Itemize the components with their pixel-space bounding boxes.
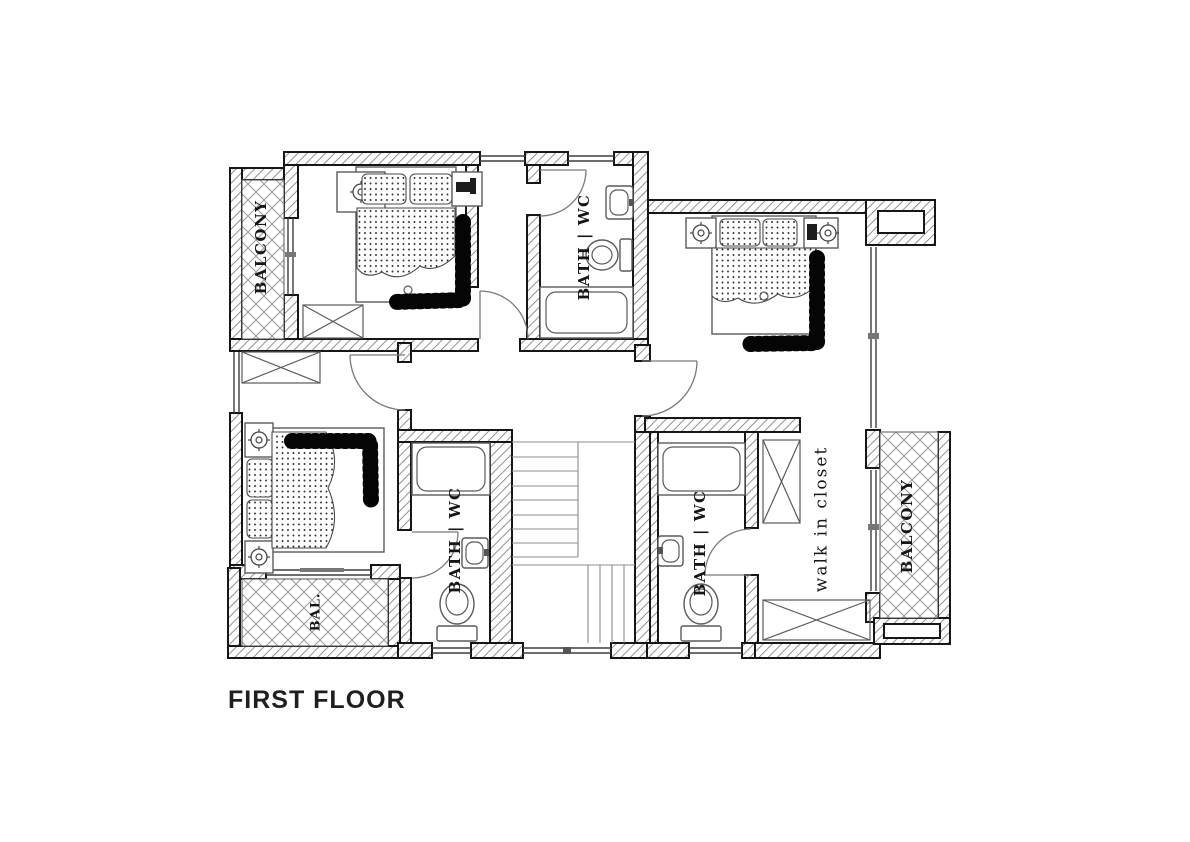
pillow [720, 219, 760, 246]
window [689, 648, 742, 653]
bath-label: BATH | WC [575, 193, 593, 300]
balcony-label: BALCONY [252, 200, 270, 295]
door-arc-bedroom2 [642, 361, 697, 416]
wardrobe-crossbox [763, 440, 800, 523]
pillow [763, 219, 797, 246]
bed-bedroom3 [245, 423, 384, 573]
floor-plan-page: BALCONY BAL. BALCONY [0, 0, 1190, 842]
bed-bedroom2 [686, 216, 839, 344]
window [523, 647, 611, 654]
window [234, 352, 239, 413]
duvet [712, 248, 816, 303]
phone-icon [470, 178, 476, 194]
wardrobe-crossbox [242, 352, 320, 383]
wardrobe-crossbox [303, 305, 363, 338]
door-arc-bedroom1 [480, 291, 528, 339]
pillow [247, 500, 273, 538]
window [432, 648, 471, 653]
pillow [247, 459, 273, 497]
plan-title: FIRST FLOOR [228, 686, 406, 714]
floor-plan-canvas: BALCONY BAL. BALCONY [0, 0, 1190, 842]
bathroom-top: BATH | WC [540, 186, 634, 338]
balcony-bottom-left: BAL. [242, 579, 388, 646]
window [568, 156, 614, 161]
pillow [362, 174, 406, 204]
window [868, 470, 879, 591]
window [285, 218, 296, 295]
door-arc-bedroom3 [350, 355, 405, 410]
balcony-top-left: BALCONY [242, 180, 284, 339]
sink [462, 538, 489, 568]
sink [606, 186, 634, 219]
duvet [357, 208, 455, 277]
wardrobe-crossbox [763, 600, 870, 640]
bath-label: BATH | WC [691, 489, 709, 596]
balcony-right: BALCONY [880, 432, 938, 618]
balcony-label: BAL. [309, 593, 324, 632]
pillow [410, 174, 452, 204]
sink [658, 536, 683, 566]
bathtub [658, 443, 745, 495]
phone-icon [456, 182, 472, 192]
bathroom-left: BATH | WC [412, 443, 490, 641]
window [266, 568, 371, 575]
walk-in-closet-label: walk in closet [812, 446, 832, 592]
balcony-label: BALCONY [898, 479, 916, 574]
window [480, 156, 525, 161]
staircase [512, 442, 635, 643]
bathroom-right: BATH | WC [658, 443, 745, 641]
phone-icon [807, 224, 817, 240]
bed-bedroom1 [337, 167, 482, 302]
window [868, 247, 879, 428]
stair-treads [512, 442, 635, 643]
door-arc-bath-right [705, 529, 751, 575]
bath-label: BATH | WC [446, 486, 464, 593]
duvet [272, 432, 335, 548]
